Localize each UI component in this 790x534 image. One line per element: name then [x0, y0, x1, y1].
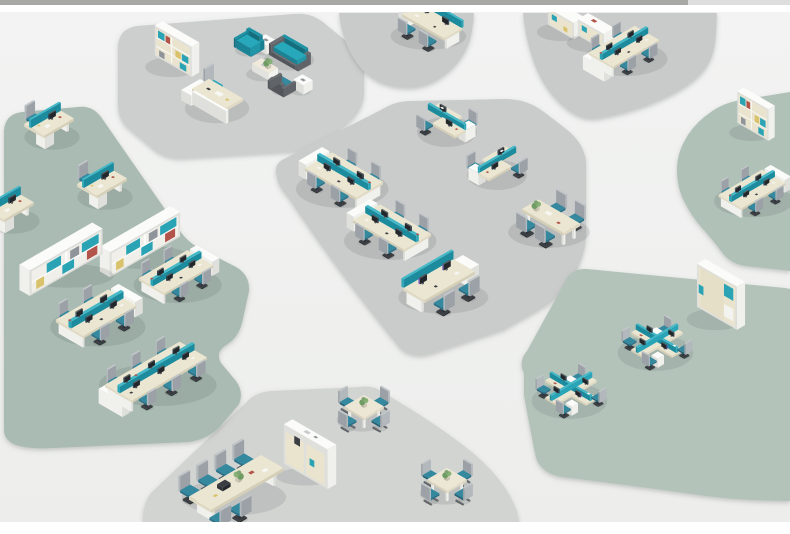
top-strip-segment-1 — [0, 0, 688, 5]
office-floorplan-illustration — [0, 0, 790, 534]
floorplan-content — [0, 0, 790, 532]
top-strip-segment-2 — [688, 0, 790, 5]
floorplan-canvas — [0, 0, 790, 534]
